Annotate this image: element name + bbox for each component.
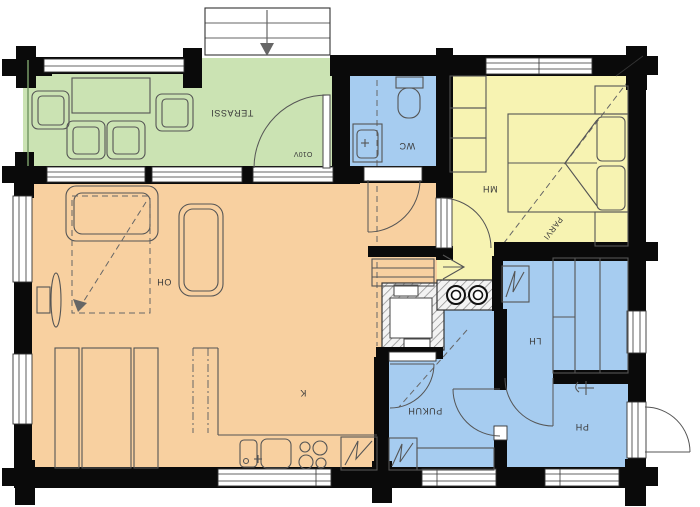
wc-label: WC [392, 141, 422, 151]
lh-window-east [627, 311, 646, 353]
oh-window-west-2 [13, 354, 32, 424]
oh-floor [30, 182, 382, 472]
terrace-oh-window-1 [47, 167, 145, 182]
mh-door-sill [436, 198, 452, 248]
fireplace [382, 283, 444, 350]
lh-label: LH [520, 336, 550, 346]
terrace-oh-window-2 [152, 167, 242, 182]
kitchen-pukuh-door-sill [389, 352, 436, 361]
pukuh-label: PUKUH [398, 406, 452, 416]
pukuh-window-south [422, 469, 496, 486]
ph-exterior-door [645, 407, 690, 452]
oh-window-west-1 [13, 196, 32, 282]
k-label: K [291, 388, 315, 398]
mh-label: MH [475, 184, 505, 194]
kitchen-window-south [218, 469, 331, 486]
floor-plan: TERASSI WC MH OH K PUKUH LH PH PARVI O10… [0, 0, 700, 507]
ph-label: PH [567, 422, 597, 432]
wood-stove [437, 280, 494, 310]
ph-exterior-door-sill [627, 402, 646, 458]
mh-window-north [486, 58, 592, 74]
pukuh-ph-door-sill [494, 426, 507, 440]
oh-label: OH [149, 277, 179, 287]
hallway-floor [377, 178, 443, 252]
door-code-label: O10V [283, 150, 323, 157]
terrace-railing [44, 59, 184, 72]
terassi-label: TERASSI [190, 108, 274, 118]
terrace-door-sill [253, 167, 333, 182]
mh-floor [450, 72, 630, 248]
wc-door-sill [364, 167, 422, 181]
ph-window-south [545, 469, 619, 486]
